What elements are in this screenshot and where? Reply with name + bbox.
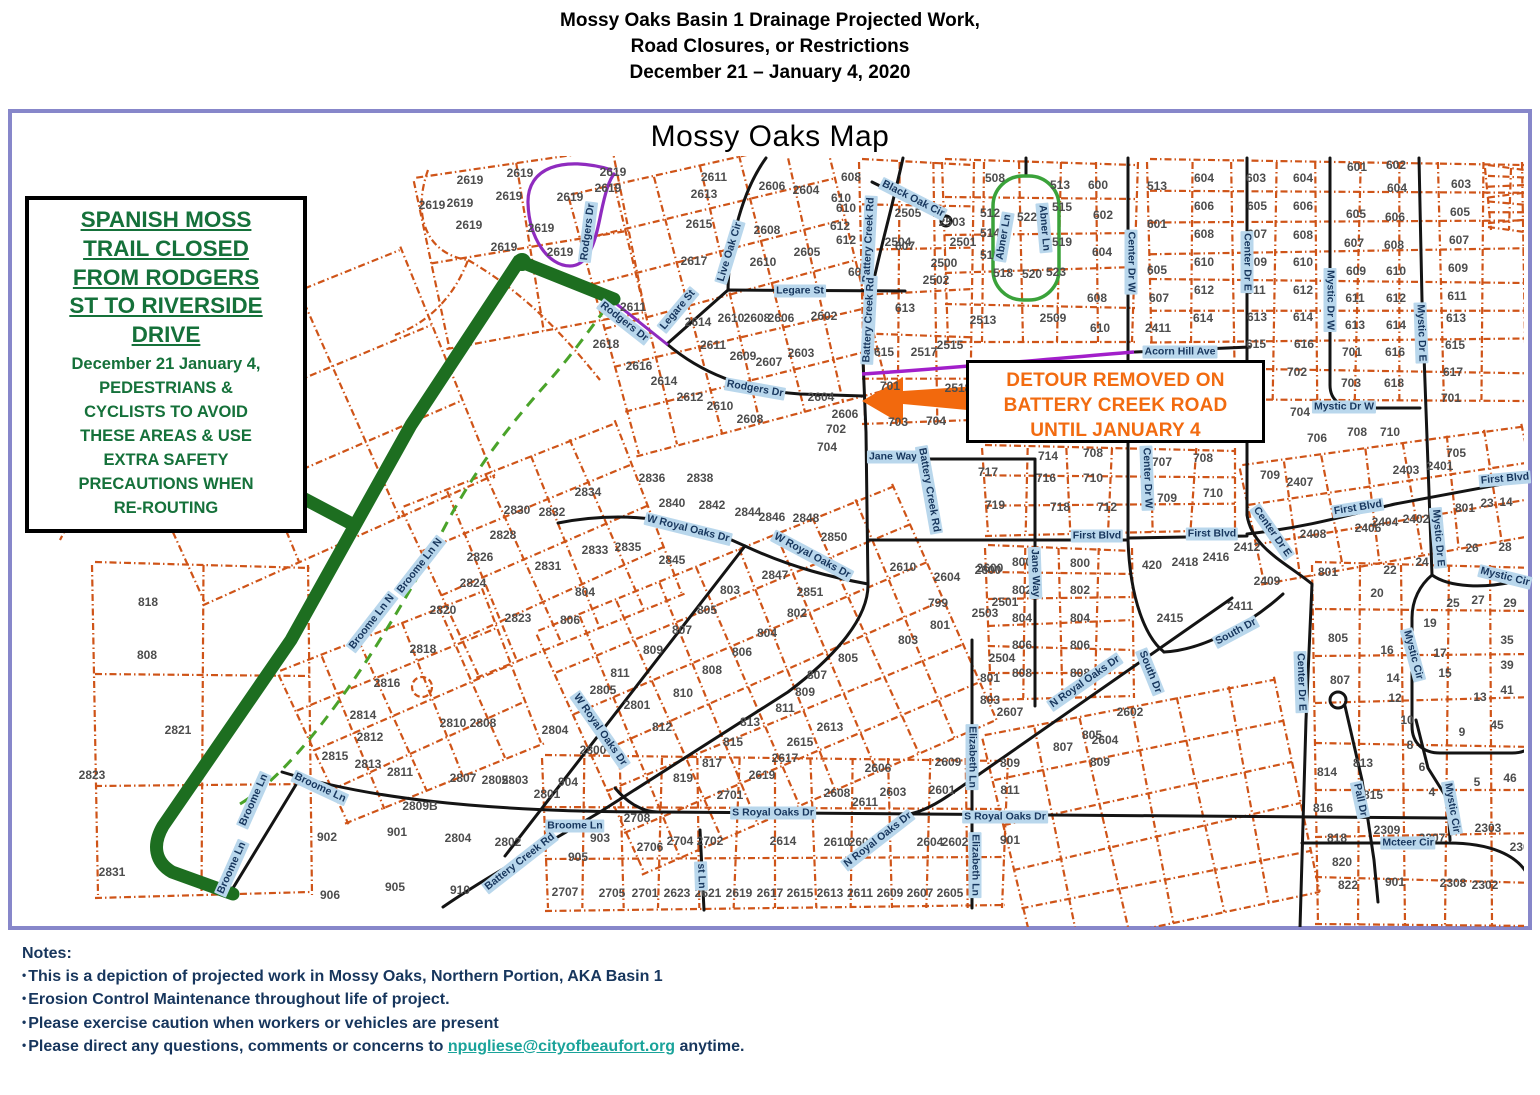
parcel-number: 2513 [970,313,997,327]
parcel-number: 2619 [447,196,474,210]
parcel-number: 2831 [99,865,126,879]
parcel-number: 518 [993,266,1013,280]
parcel-number: 613 [1446,311,1466,325]
parcel-number: 607 [1344,236,1364,250]
trail-closure-title: SPANISH MOSS TRAIL CLOSED FROM RODGERS S… [33,206,299,350]
parcel-number: 13 [1473,690,1487,704]
parcel-number: 27 [1471,593,1485,607]
parcel-number: 16 [1380,643,1394,657]
parcel-number: 605 [1247,199,1267,213]
parcel-number: 811 [610,666,630,680]
parcel-number: 2604 [934,570,961,584]
parcel-number: 2609 [730,349,757,363]
parcel-number: 2407 [1287,475,1314,489]
parcel-number: 2707 [552,885,579,899]
parcel-number: 2302 [1472,878,1499,892]
parcel-number: 2406 [1355,521,1382,535]
parcel-number: 904 [558,775,578,789]
parcel-number: 710 [1380,425,1400,439]
parcel-number: 2701 [632,886,659,900]
parcel-number: 2619 [457,173,484,187]
parcel-number: 2504 [989,651,1016,665]
parcel-number: 804 [575,585,595,599]
parcel-number: 605 [1346,207,1366,221]
parcel-number: 2613 [817,886,844,900]
parcel-number: 2823 [79,768,106,782]
parcel-number: 2307 [1419,831,1446,845]
parcel-number: 817 [702,756,722,770]
parcel-number: 513 [1050,178,1070,192]
parcel-number: 2505 [895,206,922,220]
parcel-number: 2613 [817,720,844,734]
parcel-number: 2616 [626,359,653,373]
parcel-number: 610 [1194,255,1214,269]
parcel-number: 5 [1474,775,1481,789]
parcel-number: 604 [1194,171,1214,185]
parcel-number: 811 [775,701,795,715]
parcel-number: 2619 [491,240,518,254]
parcel-number: 24 [1415,555,1429,569]
parcel-number: 604 [1387,181,1407,195]
parcel-number: 600 [1088,178,1108,192]
parcel-number: 610 [1090,321,1110,335]
parcel-number: 2701 [717,788,744,802]
parcel-number: 2606 [759,179,786,193]
parcel-number: 704 [817,440,837,454]
parcel-number: 2850 [821,530,848,544]
parcel-number: 2509 [1040,311,1067,325]
parcel-number: 2619 [528,221,555,235]
parcel-number: 2834 [575,485,602,499]
parcel-number: 420 [1142,558,1162,572]
parcel-number: 606 [1194,199,1214,213]
parcel-number: 2820 [430,603,457,617]
parcel-number: 815 [723,735,743,749]
parcel-number: 28 [1498,540,1512,554]
parcel-number: 607 [1247,227,1267,241]
parcel-number: 612 [836,233,856,247]
parcel-number: 2515 [937,338,964,352]
parcel-number: 604 [1092,245,1112,259]
parcel-number: 903 [590,831,610,845]
parcel-number: 514 [980,226,1000,240]
parcel-number: 608 [841,170,861,184]
parcel-number: 2614 [651,374,678,388]
bullet-icon: • [22,1038,26,1052]
parcel-number: 808 [137,648,157,662]
parcel-number: 2501 [950,235,977,249]
parcel-number: 802 [1070,583,1090,597]
parcel-number: 522 [1017,210,1037,224]
note-item: •Erosion Control Maintenance throughout … [22,988,744,1011]
parcel-number: 800 [1070,556,1090,570]
parcel-number: 717 [978,465,998,479]
parcel-number: 2808 [470,716,497,730]
parcel-number: 2610 [824,835,851,849]
parcel-number: 2604 [793,183,820,197]
abner-loop [993,176,1059,300]
parcel-number: 608 [1087,291,1107,305]
parcel-number: 813 [1353,756,1373,770]
parcel-number: 608 [1194,227,1214,241]
parcel-number: 615 [1246,337,1266,351]
parcel-number: 2617 [757,886,784,900]
parcel-number: 2611 [847,886,873,900]
parcel-number: 2610 [890,560,917,574]
bullet-icon: • [22,991,26,1005]
parcel-number: 45 [1490,718,1504,732]
parcel-number: 2605 [794,245,821,259]
parcel-number: 612 [1386,291,1406,305]
parcel-number: 6 [1419,760,1426,774]
parcel-number: 2309 [1374,823,1401,837]
parcel-number: 708 [1083,446,1103,460]
parcel-number: 609 [1346,264,1366,278]
parcel-number: 2619 [557,190,584,204]
parcel-number: 2601 [929,783,956,797]
parcel-number: 2623 [664,886,691,900]
parcel-number: 905 [568,850,588,864]
parcel-number: 615 [1445,338,1465,352]
parcel-number: 2844 [735,505,762,519]
parcel-number: 810 [673,686,693,700]
parcel-number: 14 [1386,671,1400,685]
parcel-number: 809 [795,685,815,699]
parcel-number: 2830 [504,503,531,517]
parcel-number: 601 [1147,217,1167,231]
parcel-number: 2805 [590,683,617,697]
parcel-number: 2810 [440,716,467,730]
parcel-number: 704 [926,414,946,428]
parcel-number: 2608 [744,311,771,325]
parcel-number: 805 [1082,728,1102,742]
parcel-number: 2813 [355,757,382,771]
parcel-number: 608 [1384,238,1404,252]
parcel-number: 2607 [756,355,783,369]
parcel-number: 803 [720,583,740,597]
parcel-number: 801 [930,618,950,632]
parcel-number: 2812 [357,730,384,744]
parcel-number: 2823 [505,611,532,625]
parcel-number: 603 [1451,177,1471,191]
parcel-number: 2706 [637,840,664,854]
parcel-number: 2611 [620,300,646,314]
parcel-number: 616 [1385,345,1405,359]
parcel-number: 2500 [931,256,958,270]
parcel-number: 818 [138,595,158,609]
parcel-number: 2611 [701,170,727,184]
parcel-number: 603 [1246,171,1266,185]
parcel-number: 2614 [685,315,712,329]
parcel-number: 2832 [539,505,566,519]
parcel-number: 2807 [450,771,477,785]
parcel-number: 613 [1247,310,1267,324]
parcel-number: 2608 [824,786,851,800]
parcel-number: 822 [1338,878,1358,892]
parcel-number: 2408 [1300,527,1327,541]
parcel-number: 2801 [624,698,651,712]
parcel-number: 2301 [1510,840,1524,854]
parcel-number: 614 [1193,311,1213,325]
bullet-icon: • [22,968,26,982]
parcel-number: 2615 [787,886,814,900]
parcel-number: 807 [672,623,692,637]
parcel-number: 2611 [700,338,726,352]
parcel-number: 606 [1385,210,1405,224]
parcel-number: 22 [1383,563,1397,577]
parcel-number: 910 [450,883,470,897]
parcel-number: 2502 [923,273,950,287]
parcel-number: 808 [1012,666,1032,680]
parcel-number: 2607 [997,705,1024,719]
parcel-number: 2619 [547,245,574,259]
parcel-number: 2604 [808,390,835,404]
parcel-number: 2603 [880,785,907,799]
parcel-number: 716 [1036,471,1056,485]
parcel-number: 2606 [768,311,795,325]
parcel-number: 2606 [832,407,859,421]
parcel-number: 801 [1455,501,1475,515]
parcel-number: 2828 [490,528,517,542]
parcel-number: 2617 [772,751,799,765]
parcel-number: 15 [1438,666,1452,680]
parcel-number: 35 [1500,633,1514,647]
parcel-number: 2619 [456,218,483,232]
parcel-number: 602 [1386,158,1406,172]
parcel-number: 2846 [759,510,786,524]
parcel-number: 710 [1083,471,1103,485]
parcel-number: 2613 [691,187,718,201]
parcel-number: 709 [1157,491,1177,505]
parcel-number: 707 [1152,455,1172,469]
parcel-number: 601 [1347,160,1367,174]
parcel-number: 613 [895,301,915,315]
parcel-number: 2604 [917,835,944,849]
trail-closure-body: December 21 January 4, PEDESTRIANS & CYC… [33,352,299,521]
note-item: •This is a depiction of projected work i… [22,965,744,988]
parcel-number: 813 [740,715,760,729]
parcel-number: 710 [1203,486,1223,500]
parcel-number: 608 [1293,228,1313,242]
parcel-number: 2848 [793,511,820,525]
parcel-number: 611 [1447,289,1467,303]
parcel-number: 2838 [687,471,714,485]
parcel-number: 701 [880,379,900,393]
parcel-number: 901 [387,825,407,839]
parcel-number: 2415 [1157,611,1184,625]
parcel-number: 2611 [852,795,878,809]
parcel-number: 2842 [699,498,726,512]
parcel-number: 2809B [402,799,438,813]
parcel-number: 2517 [911,345,938,359]
parcel-number: 516 [980,248,1000,262]
parcel-number: 2814 [350,708,377,722]
parcel-number: 2610 [718,311,745,325]
parcel-number: 812 [652,720,672,734]
parcel-number: 2619 [749,768,776,782]
parcel-number: 706 [1307,431,1327,445]
parcel-number: 804 [757,626,777,640]
parcel-number: 9 [1459,725,1466,739]
parcel-number: 2708 [624,811,651,825]
parcel-number: 2815 [322,749,349,763]
parcel-number: 2804 [445,831,472,845]
parcel-number: 602 [1093,208,1113,222]
parcel-number: 702 [826,422,846,436]
parcel-number: 804 [1070,611,1090,625]
parcel-number: 612 [830,219,850,233]
notes-section: Notes: •This is a depiction of projected… [22,942,744,1058]
parcel-number: 508 [985,171,1005,185]
parcel-number: 2606 [865,761,892,775]
parcel-number: 2610 [707,399,734,413]
parcel-number: 607 [1449,233,1469,247]
parcel-number: 809 [1090,755,1110,769]
parcel-number: 2704 [667,834,694,848]
parcel-number: 709 [1260,468,1280,482]
parcel-number: 2605 [937,886,964,900]
parcel-number: 4 [1429,785,1436,799]
parcel-number: 2411 [1227,599,1253,613]
parcel-number: 605 [1450,205,1470,219]
parcel-number: 814 [1317,765,1337,779]
page-title: Mossy Oaks Basin 1 Drainage Projected Wo… [0,8,1540,87]
parcel-number: 2802 [495,835,522,849]
parcel-number: 2821 [165,723,192,737]
parcel-number: 614 [1386,318,1406,332]
parcel-number: 29 [1503,596,1517,610]
parcel-number: 2804 [542,723,569,737]
parcel-number: 701 [1441,391,1461,405]
trail-closure-callout: SPANISH MOSS TRAIL CLOSED FROM RODGERS S… [25,196,307,533]
parcel-number: 2702 [697,834,724,848]
parcel-number: 801 [980,671,1000,685]
parcel-number: 2608 [849,835,876,849]
parcel-number: 2610 [750,255,777,269]
parcel-number: 2608 [737,412,764,426]
parcel-number: 2619 [507,166,534,180]
parcel-number: 519 [1052,235,1072,249]
parcel-number: 800 [1012,555,1032,569]
parcel-number: 2607 [907,886,934,900]
parcel-number: 2847 [762,568,789,582]
parcel-number: 607 [1149,291,1169,305]
parcel-number: 703 [1341,376,1361,390]
parcel-number: 2603 [788,346,815,360]
parcel-number: 2845 [659,553,686,567]
title-line-3: December 21 – January 4, 2020 [0,60,1540,86]
parcel-number: 23 [1480,496,1494,510]
parcel-number: 2621 [695,886,722,900]
parcel-number: 2602 [1117,705,1144,719]
parcel-number: 803 [898,633,918,647]
parcel-number: 2612 [677,390,704,404]
parcel-number: 612 [1194,283,1214,297]
parcel-number: 20 [1370,586,1384,600]
parcel-number: 703 [888,415,908,429]
parcel-number: 609 [1247,255,1267,269]
parcel-number: 2705 [599,886,626,900]
parcel-number: 816 [1313,801,1333,815]
parcel-number: 806 [560,613,580,627]
parcel-number: 26 [1465,541,1479,555]
parcel-number: 807 [807,668,827,682]
parcel-number: 611 [1345,291,1365,305]
parcel-number: 17 [1433,646,1447,660]
parcel-number: 2826 [467,550,494,564]
parcel-number: 2504 [885,235,912,249]
parcel-number: 701 [1342,345,1362,359]
parcel-number: 2503 [939,215,966,229]
parcel-number: 2303 [1475,821,1502,835]
parcel-number: 604 [1293,171,1313,185]
parcel-number: 705 [1446,446,1466,460]
parcel-number: 609 [1448,261,1468,275]
parcel-number: 2619 [419,198,446,212]
parcel-number: 819 [673,771,693,785]
parcel-number: 2602 [942,835,969,849]
parcel-number: 2412 [1234,540,1261,554]
parcel-number: 719 [985,498,1005,512]
notes-title: Notes: [22,942,744,965]
parcel-number: 806 [1012,638,1032,652]
parcel-number: 615 [874,345,894,359]
note-item: •Please exercise caution when workers or… [22,1012,744,1035]
parcel-number: 2403 [1393,463,1420,477]
email-link[interactable]: npugliese@cityofbeaufort.org [448,1038,675,1055]
parcel-number: 2615 [787,735,814,749]
parcel-number: 811 [1000,783,1020,797]
parcel-number: 905 [385,880,405,894]
parcel-number: 2836 [639,471,666,485]
parcel-number: 712 [1097,500,1117,514]
parcel-number: 806 [1070,638,1090,652]
parcel-number: 613 [1345,318,1365,332]
parcel-number: 708 [1193,451,1213,465]
parcel-number: 2801 [534,787,561,801]
parcel-number: 617 [1443,365,1463,379]
parcel-number: 2416 [1203,550,1230,564]
parcel-number: 2402 [1403,512,1430,526]
parcel-number: 2602 [811,309,838,323]
parcel-number: 807 [1053,740,1073,754]
map-title: Mossy Oaks Map [0,120,1540,154]
parcel-number: 616 [1294,337,1314,351]
parcel-number: 805 [697,603,717,617]
parcel-number: 39 [1500,658,1514,672]
parcel-number: 2824 [460,576,487,590]
parcel-number: 611 [1246,283,1266,297]
parcel-number: 2418 [1172,555,1199,569]
parcel-number: 702 [1287,365,1307,379]
parcel-number: 2618 [593,337,620,351]
detour-removed-callout: DETOUR REMOVED ON BATTERY CREEK ROAD UNT… [966,360,1265,443]
parcel-number: 605 [1147,263,1167,277]
parcel-number: 809 [643,643,663,657]
parcel-number: 802 [787,606,807,620]
parcel-number: 805 [838,651,858,665]
parcel-number: 808 [1070,666,1090,680]
parcel-number: 610 [1386,264,1406,278]
parcel-number: 14 [1499,495,1513,509]
parcel-number: 718 [1050,500,1070,514]
parcel-number: 801 [1318,565,1338,579]
parcel-number: 714 [1038,449,1058,463]
parcel-number: 2800 [580,743,607,757]
parcel-number: 902 [317,830,337,844]
parcel-number: 614 [1293,310,1313,324]
bullet-icon: • [22,1015,26,1029]
